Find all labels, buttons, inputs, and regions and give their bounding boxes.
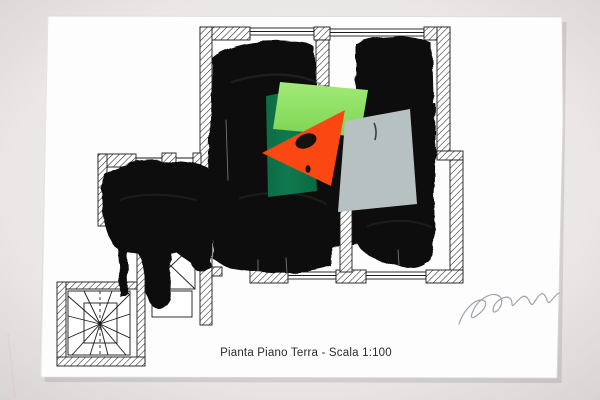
window-opening xyxy=(250,28,314,35)
wall-segment xyxy=(57,357,145,366)
collage-gray-square xyxy=(338,109,417,212)
wall-segment xyxy=(450,160,463,278)
window-opening xyxy=(288,272,336,279)
artwork-canvas: Pianta Piano Terra - Scala 1:100 xyxy=(0,0,600,400)
wall-segment xyxy=(437,151,463,160)
partition-wall xyxy=(316,40,329,86)
plan-caption: Pianta Piano Terra - Scala 1:100 xyxy=(220,347,392,359)
artwork-photo: Pianta Piano Terra - Scala 1:100 xyxy=(0,0,600,400)
wall-segment xyxy=(314,27,330,40)
window-opening xyxy=(366,272,426,279)
partition-wall-lower xyxy=(340,210,352,272)
wall-segment xyxy=(437,27,450,151)
wall-segment xyxy=(426,270,463,283)
wall-segment xyxy=(57,282,66,365)
paint-dot-on-triangle xyxy=(305,165,310,173)
window-opening xyxy=(330,29,424,36)
wall-segment xyxy=(212,267,222,276)
winder-staircase xyxy=(68,291,130,355)
